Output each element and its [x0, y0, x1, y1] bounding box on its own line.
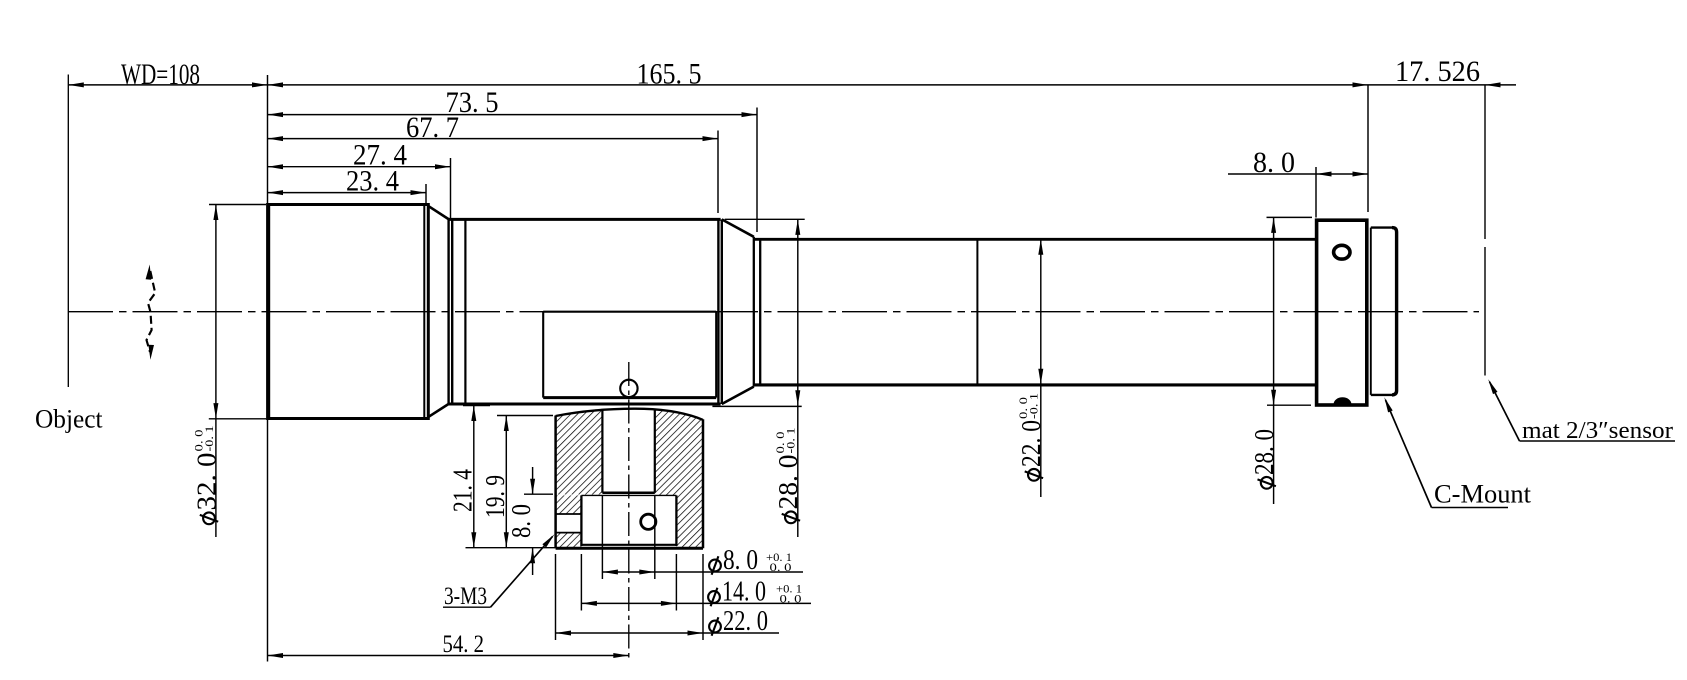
- svg-text:28. 0: 28. 0: [773, 455, 803, 510]
- svg-text:67. 7: 67. 7: [406, 111, 459, 144]
- svg-text:-0. 1: -0. 1: [202, 426, 216, 452]
- svg-text:22. 0: 22. 0: [1016, 420, 1046, 467]
- svg-text:165. 5: 165. 5: [637, 58, 702, 91]
- svg-text:0. 0: 0. 0: [770, 560, 792, 574]
- svg-text:32. 0: 32. 0: [191, 453, 221, 511]
- svg-text:WD=108: WD=108: [121, 58, 200, 91]
- svg-text:54. 2: 54. 2: [443, 629, 485, 658]
- svg-text:14. 0: 14. 0: [722, 576, 766, 608]
- svg-text:0. 0: 0. 0: [780, 592, 802, 606]
- svg-text:23. 4: 23. 4: [346, 165, 399, 198]
- svg-text:mat 2/3″sensor: mat 2/3″sensor: [1522, 418, 1673, 444]
- svg-text:-0. 1: -0. 1: [784, 428, 798, 454]
- svg-text:-0. 1: -0. 1: [1027, 393, 1041, 419]
- svg-text:Object: Object: [35, 405, 103, 434]
- svg-text:8. 0: 8. 0: [506, 504, 536, 538]
- svg-text:22. 0: 22. 0: [723, 605, 768, 637]
- svg-text:21. 4: 21. 4: [447, 469, 477, 512]
- svg-text:8. 0: 8. 0: [1253, 146, 1295, 179]
- svg-text:17. 526: 17. 526: [1395, 55, 1480, 88]
- svg-text:8. 0: 8. 0: [723, 544, 758, 576]
- svg-text:C-Mount: C-Mount: [1434, 480, 1532, 509]
- svg-text:3-M3: 3-M3: [444, 583, 487, 610]
- svg-text:28. 0: 28. 0: [1249, 429, 1279, 475]
